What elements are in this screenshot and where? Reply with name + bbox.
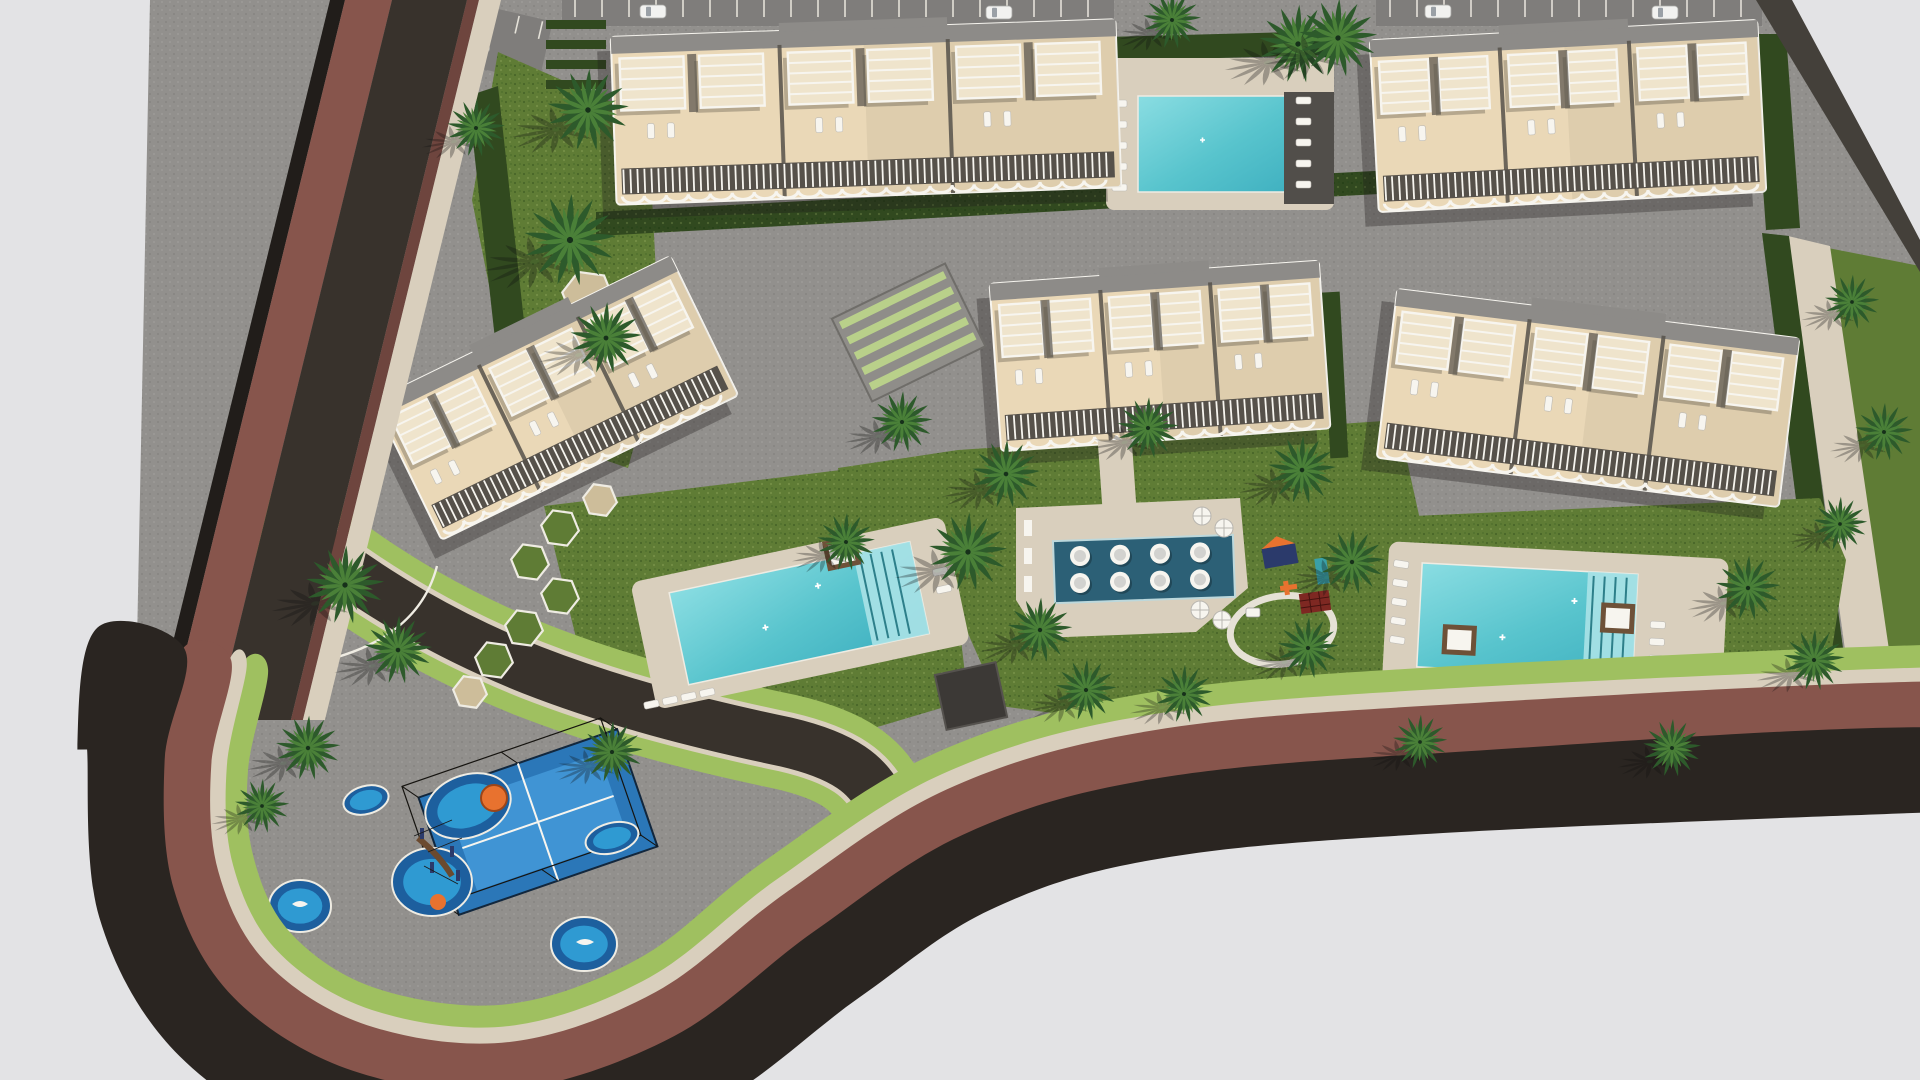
- balcony-railing: [938, 159, 939, 183]
- sun-lounger: [1296, 181, 1311, 188]
- balcony-railing: [980, 157, 981, 181]
- balcony-railing: [854, 161, 855, 185]
- balcony-railing: [1574, 167, 1575, 191]
- rooftop-pergola: [1379, 59, 1431, 114]
- daybed-cushion: [1605, 608, 1630, 629]
- balcony-railing: [1015, 156, 1016, 180]
- hedge-row: [546, 60, 606, 69]
- parked-car: [1425, 5, 1451, 18]
- roof-lounger: [1544, 396, 1553, 412]
- balcony-railing: [1748, 158, 1749, 182]
- balcony-railing: [826, 162, 827, 186]
- balcony-railing: [686, 167, 687, 191]
- balcony-railing: [791, 164, 792, 188]
- in-water-lounger: [1194, 546, 1206, 558]
- roof-lounger: [835, 117, 843, 132]
- balcony-railing: [1706, 160, 1707, 184]
- balcony-railing: [1427, 174, 1428, 198]
- pool-pavilion: [935, 662, 1007, 730]
- rooftop-pergola: [999, 302, 1044, 357]
- balcony-railing: [1511, 170, 1512, 194]
- balcony-railing: [1616, 165, 1617, 189]
- balcony-railing: [1399, 176, 1400, 200]
- balcony-railing: [1672, 162, 1673, 186]
- rooftop-pergola: [1268, 283, 1313, 338]
- rooftop-pergola: [1530, 328, 1587, 386]
- toy-car: [1246, 608, 1260, 617]
- balcony-railing: [721, 166, 722, 190]
- rooftop-pergola: [699, 54, 765, 108]
- balcony-railing: [665, 168, 666, 192]
- balcony-railing: [1490, 171, 1491, 195]
- sun-lounger: [1650, 621, 1665, 629]
- balcony-railing: [1441, 174, 1442, 198]
- balcony-railing: [945, 158, 946, 182]
- in-water-lounger: [1114, 549, 1126, 561]
- balcony-railing: [1651, 163, 1652, 187]
- render-stage: [0, 0, 1920, 1080]
- rooftop-pergola: [1109, 295, 1154, 350]
- balcony-railing: [1532, 169, 1533, 193]
- sun-lounger: [1649, 638, 1664, 646]
- in-water-lounger: [1074, 550, 1086, 562]
- balcony-railing: [1679, 161, 1680, 185]
- rooftop-pergola: [1458, 319, 1515, 377]
- balcony-railing: [861, 161, 862, 185]
- balcony-railing: [1504, 170, 1505, 194]
- balcony-railing: [1713, 159, 1714, 183]
- balcony-railing: [1022, 156, 1023, 180]
- roof-lounger: [1254, 353, 1262, 368]
- balcony-railing: [1734, 158, 1735, 182]
- roof-lounger: [1548, 119, 1556, 134]
- balcony-railing: [1008, 156, 1009, 180]
- roof-lounger: [647, 123, 655, 138]
- rooftop-pergola: [1219, 287, 1264, 342]
- balcony-railing: [1699, 160, 1700, 184]
- balcony-railing: [1029, 155, 1030, 179]
- balcony-railing: [812, 163, 813, 187]
- hedge-row: [546, 40, 606, 49]
- balcony-railing: [1420, 175, 1421, 199]
- balcony-railing: [1050, 155, 1051, 179]
- balcony-railing: [693, 167, 694, 191]
- balcony-railing: [847, 162, 848, 186]
- in-water-lounger: [1154, 575, 1166, 587]
- balcony-railing: [1693, 161, 1694, 185]
- balcony-railing: [1595, 166, 1596, 190]
- roof-lounger: [815, 118, 823, 133]
- rooftop-pergola: [1726, 352, 1783, 410]
- in-water-lounger: [1114, 576, 1126, 588]
- balcony-railing: [749, 165, 750, 189]
- roof-lounger: [1657, 113, 1665, 128]
- balcony-railing: [1043, 155, 1044, 179]
- balcony-railing: [840, 162, 841, 186]
- roof-lounger: [1430, 382, 1439, 398]
- balcony-railing: [735, 166, 736, 190]
- roof-lounger: [1678, 412, 1687, 428]
- balcony-railing: [1036, 155, 1037, 179]
- balcony-railing: [931, 159, 932, 183]
- balcony-railing: [707, 167, 708, 191]
- rooftop-pergola: [867, 48, 933, 102]
- balcony-railing: [1385, 177, 1386, 201]
- roof-lounger: [984, 112, 992, 127]
- balcony-railing: [1623, 164, 1624, 188]
- parked-car: [986, 6, 1012, 19]
- rooftop-pergola: [1396, 312, 1453, 370]
- rooftop-pergola: [1048, 299, 1093, 354]
- rooftop-pergola: [1158, 291, 1203, 346]
- sun-lounger: [1296, 139, 1311, 146]
- balcony-railing: [1001, 156, 1002, 180]
- balcony-railing: [1727, 159, 1728, 183]
- rooftop-pergola: [1637, 46, 1689, 101]
- balcony-railing: [959, 158, 960, 182]
- balcony-railing: [1602, 165, 1603, 189]
- balcony-railing: [777, 164, 778, 188]
- balcony-railing: [1755, 157, 1756, 181]
- balcony-railing: [917, 159, 918, 183]
- balcony-railing: [868, 161, 869, 185]
- balcony-railing: [742, 165, 743, 189]
- balcony-railing: [805, 163, 806, 187]
- balcony-railing: [896, 160, 897, 184]
- swimming-pool-north: [1138, 96, 1294, 192]
- rooftop-pergola: [619, 56, 685, 110]
- rooftop-pergola: [1592, 336, 1649, 394]
- balcony-railing: [1665, 162, 1666, 186]
- deck-bench: [1024, 520, 1032, 536]
- play-post: [450, 846, 454, 857]
- balcony-railing: [819, 163, 820, 187]
- balcony-railing: [623, 170, 624, 194]
- balcony-railing: [1448, 173, 1449, 197]
- apartment-block-1: [596, 11, 1121, 219]
- balcony-railing: [1476, 172, 1477, 196]
- rooftop-pergola: [1508, 52, 1560, 107]
- roof-lounger: [1234, 354, 1242, 369]
- sun-lounger: [1296, 118, 1311, 125]
- sun-lounger: [1296, 160, 1311, 167]
- site-plan-render: [0, 0, 1920, 1080]
- balcony-railing: [1644, 163, 1645, 187]
- rooftop-pergola: [1567, 49, 1619, 104]
- balcony-railing: [1560, 168, 1561, 192]
- deck-bench: [1024, 548, 1032, 564]
- roof-lounger: [1398, 127, 1406, 142]
- parked-car: [640, 5, 666, 18]
- balcony-railing: [1064, 154, 1065, 178]
- balcony-railing: [1078, 154, 1079, 178]
- balcony-railing: [1483, 172, 1484, 196]
- balcony-railing: [1092, 153, 1093, 177]
- balcony-railing: [1609, 165, 1610, 189]
- balcony-railing: [1658, 162, 1659, 186]
- balcony-railing: [1741, 158, 1742, 182]
- balcony-railing: [833, 162, 834, 186]
- balcony-railing: [651, 169, 652, 193]
- balcony-railing: [1539, 169, 1540, 193]
- rooftop-pergola: [1035, 42, 1101, 96]
- balcony-railing: [644, 169, 645, 193]
- balcony-railing: [1497, 171, 1498, 195]
- balcony-railing: [784, 164, 785, 188]
- balcony-railing: [1637, 163, 1638, 187]
- balcony-railing: [679, 168, 680, 192]
- balcony-railing: [1469, 172, 1470, 196]
- balcony-railing: [910, 159, 911, 183]
- balcony-railing: [1546, 168, 1547, 192]
- balcony-railing: [1413, 175, 1414, 199]
- balcony-railing: [994, 157, 995, 181]
- balcony-railing: [1630, 164, 1631, 188]
- roof-lounger: [1698, 415, 1707, 431]
- balcony-railing: [1106, 153, 1107, 177]
- balcony-railing: [924, 159, 925, 183]
- balcony-railing: [966, 158, 967, 182]
- balcony-railing: [1099, 153, 1100, 177]
- balcony-railing: [728, 166, 729, 190]
- north-pool-area: [1106, 58, 1334, 210]
- rooftop-pergola: [956, 45, 1022, 99]
- balcony-railing: [700, 167, 701, 191]
- balcony-railing: [1567, 167, 1568, 191]
- rooftop-pergola: [788, 50, 854, 104]
- play-mat-surface: [1299, 590, 1331, 614]
- balcony-railing: [1581, 166, 1582, 190]
- balcony-railing: [714, 166, 715, 190]
- roof-lounger: [1564, 398, 1573, 414]
- roof-lounger: [1004, 111, 1012, 126]
- parked-car: [1652, 6, 1678, 19]
- spiral-slide: [481, 785, 507, 811]
- roof-lounger: [1035, 368, 1043, 383]
- balcony-railing: [1071, 154, 1072, 178]
- balcony-railing: [903, 160, 904, 184]
- in-water-lounger: [1194, 573, 1206, 585]
- deck-bench: [1024, 576, 1032, 592]
- balcony-railing: [889, 160, 890, 184]
- roof-lounger: [1677, 112, 1685, 127]
- balcony-railing: [658, 168, 659, 192]
- balcony-railing: [882, 160, 883, 184]
- balcony-railing: [1525, 169, 1526, 193]
- daybed-cushion: [1447, 629, 1472, 650]
- roof-lounger: [1125, 362, 1133, 377]
- balcony-railing: [630, 169, 631, 193]
- balcony-railing: [798, 163, 799, 187]
- balcony-railing: [1686, 161, 1687, 185]
- balcony-railing: [763, 165, 764, 189]
- balcony-railing: [1392, 176, 1393, 200]
- balcony-railing: [1455, 173, 1456, 197]
- balcony-railing: [1085, 153, 1086, 177]
- roof-lounger: [1145, 361, 1153, 376]
- in-water-lounger: [1074, 577, 1086, 589]
- roof-lounger: [1410, 379, 1419, 395]
- play-post: [456, 870, 460, 881]
- balcony-railing: [875, 161, 876, 185]
- rooftop-pergola: [1438, 56, 1490, 111]
- balcony-railing: [1720, 159, 1721, 183]
- balcony-railing: [973, 157, 974, 181]
- balcony-railing: [637, 169, 638, 193]
- balcony-railing: [1057, 154, 1058, 178]
- play-mat: [1299, 590, 1331, 614]
- balcony-railing: [987, 157, 988, 181]
- roof-lounger: [667, 123, 675, 138]
- balcony-railing: [770, 164, 771, 188]
- rooftop-pergola: [1696, 43, 1748, 98]
- balcony-railing: [1518, 170, 1519, 194]
- splash-toy: [430, 894, 446, 910]
- balcony-railing: [1462, 173, 1463, 197]
- balcony-railing: [1588, 166, 1589, 190]
- hedge-row: [546, 20, 606, 29]
- roof-lounger: [1528, 120, 1536, 135]
- balcony-railing: [1553, 168, 1554, 192]
- apartment-block-2: [1355, 12, 1767, 227]
- in-water-lounger: [1154, 548, 1166, 560]
- balcony-railing: [952, 158, 953, 182]
- sun-lounger: [1296, 97, 1311, 104]
- balcony-railing: [756, 165, 757, 189]
- rooftop-pergola: [1664, 345, 1721, 403]
- roof-lounger: [1418, 125, 1426, 140]
- balcony-railing: [1406, 176, 1407, 200]
- balcony-railing: [1434, 174, 1435, 198]
- roof-lounger: [1015, 370, 1023, 385]
- balcony-railing: [672, 168, 673, 192]
